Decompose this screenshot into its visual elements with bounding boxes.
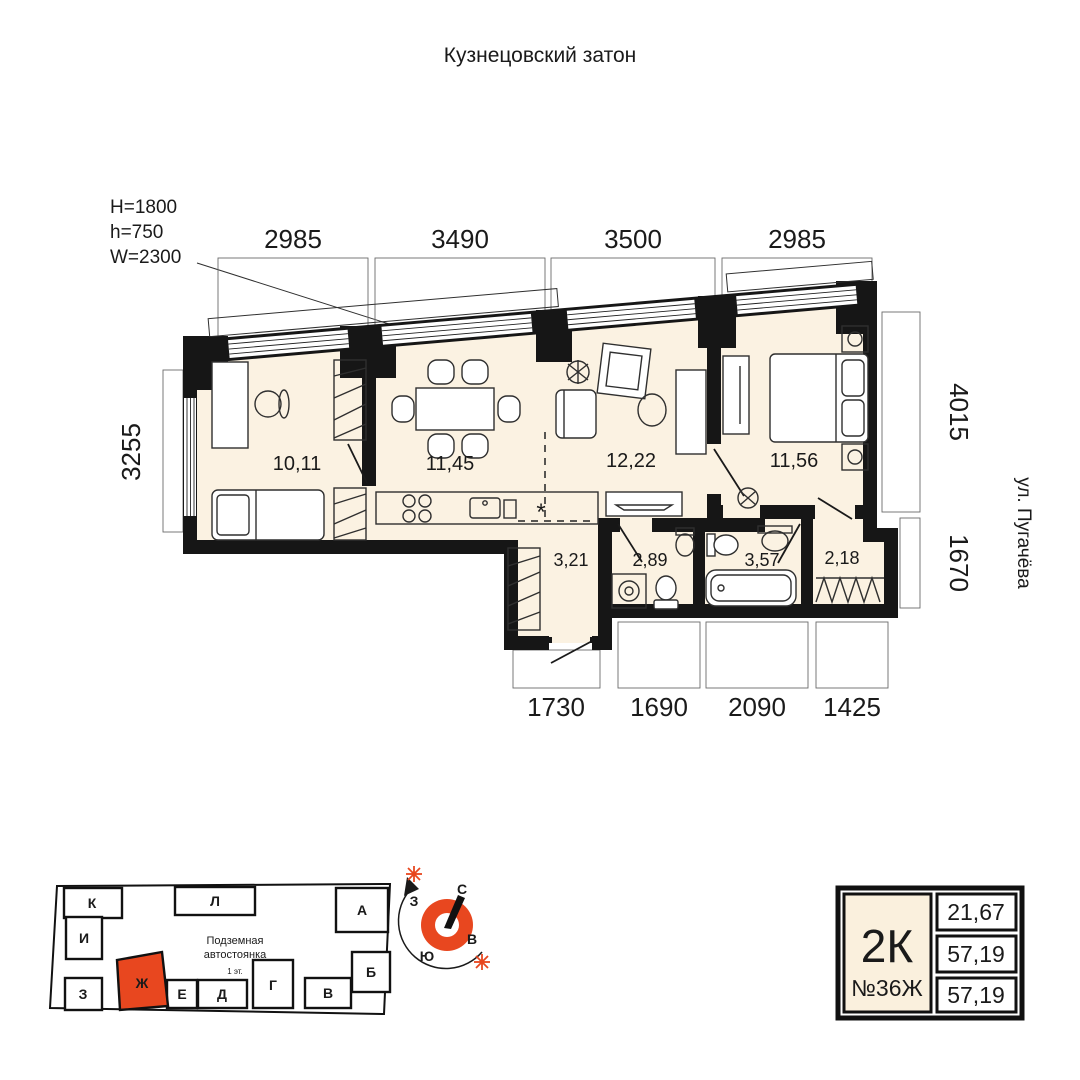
site-block-I: И: [79, 930, 89, 946]
accent-chair: [597, 343, 651, 398]
complex-title: Кузнецовский затон: [444, 44, 637, 67]
compass-north: С: [457, 881, 467, 897]
chair: [428, 360, 454, 384]
window-spec-height: H=1800: [110, 197, 177, 218]
chair: [462, 360, 488, 384]
site-block-B: Б: [366, 964, 376, 980]
dim-bottom-4: 1425: [823, 692, 881, 722]
area-bathroom: 3,57: [744, 550, 779, 570]
compass-south: Ю: [420, 948, 434, 964]
dim-top-3: 3500: [604, 224, 662, 254]
dining-table: [416, 388, 494, 430]
dim-top-4: 2985: [768, 224, 826, 254]
compass-west: З: [410, 893, 419, 909]
dim-left: 3255: [116, 423, 146, 481]
area-wc: 2,89: [632, 550, 667, 570]
dim-bottom-3: 2090: [728, 692, 786, 722]
toilet: [714, 535, 738, 555]
area-hall: 3,21: [553, 550, 588, 570]
dim-bottom-2: 1690: [630, 692, 688, 722]
unit-number: №36Ж: [851, 975, 923, 1001]
site-plan: К И З Л А Б В Г Д Е Ж Подземная автостоя…: [50, 884, 390, 1014]
compass: С З Ю В: [398, 866, 490, 970]
unit-area-total: 57,19: [947, 941, 1005, 967]
chair: [498, 396, 520, 422]
window-spec-sill: h=750: [110, 222, 163, 243]
sun-icon: [474, 954, 490, 970]
site-block-K: К: [88, 895, 97, 911]
site-block-V: В: [323, 985, 333, 1001]
unit-type: 2К: [861, 920, 914, 972]
tv-console: [606, 492, 682, 516]
street-label: ул. Пугачёва: [1013, 477, 1034, 589]
desk: [212, 362, 248, 448]
site-block-A: А: [357, 902, 367, 918]
unit-card: 2К №36Ж 21,67 57,19 57,19: [838, 888, 1022, 1018]
window-spec-note: H=1800 h=750 W=2300: [110, 197, 430, 337]
site-block-E: Е: [177, 986, 186, 1002]
dim-top-2: 3490: [431, 224, 489, 254]
desk: [676, 370, 706, 454]
fridge-marker: *: [536, 499, 545, 526]
parking-label-line1: Подземная: [207, 935, 264, 947]
site-block-L: Л: [210, 893, 220, 909]
area-bedroom2: 11,56: [770, 450, 819, 472]
chair: [392, 396, 414, 422]
dim-bottom-1: 1730: [527, 692, 585, 722]
double-bed: [770, 354, 868, 442]
floorplan-page: Кузнецовский затон H=1800 h=750 W=2300 2…: [0, 0, 1080, 1080]
dim-right-lower: 1670: [944, 534, 974, 592]
toilet: [656, 576, 676, 600]
area-living: 12,22: [606, 450, 656, 472]
site-block-G: Г: [269, 977, 277, 993]
site-block-Z: З: [79, 986, 88, 1002]
window-left-wall: [184, 398, 196, 516]
site-block-D: Д: [217, 986, 227, 1002]
compass-east: В: [467, 931, 477, 947]
dim-top-1: 2985: [264, 224, 322, 254]
parking-label-line2: автостоянка: [204, 949, 267, 961]
parking-sublabel: 1 эт.: [227, 967, 243, 976]
armchair: [556, 390, 596, 438]
window-spec-width: W=2300: [110, 247, 181, 268]
site-block-Zh: Ж: [135, 975, 149, 991]
unit-area-living: 21,67: [947, 899, 1005, 925]
area-kitchen: 11,45: [426, 453, 475, 475]
sun-icon: [406, 866, 422, 882]
unit-area-full: 57,19: [947, 982, 1005, 1008]
dim-right-upper: 4015: [944, 383, 974, 441]
area-bedroom1: 10,11: [273, 453, 322, 475]
tv-stand: [723, 356, 749, 434]
area-wardrobe: 2,18: [824, 548, 859, 568]
bed-single: [212, 490, 324, 540]
floorplan-svg: Кузнецовский затон H=1800 h=750 W=2300 2…: [0, 0, 1080, 1080]
door-entrance: [551, 640, 594, 663]
